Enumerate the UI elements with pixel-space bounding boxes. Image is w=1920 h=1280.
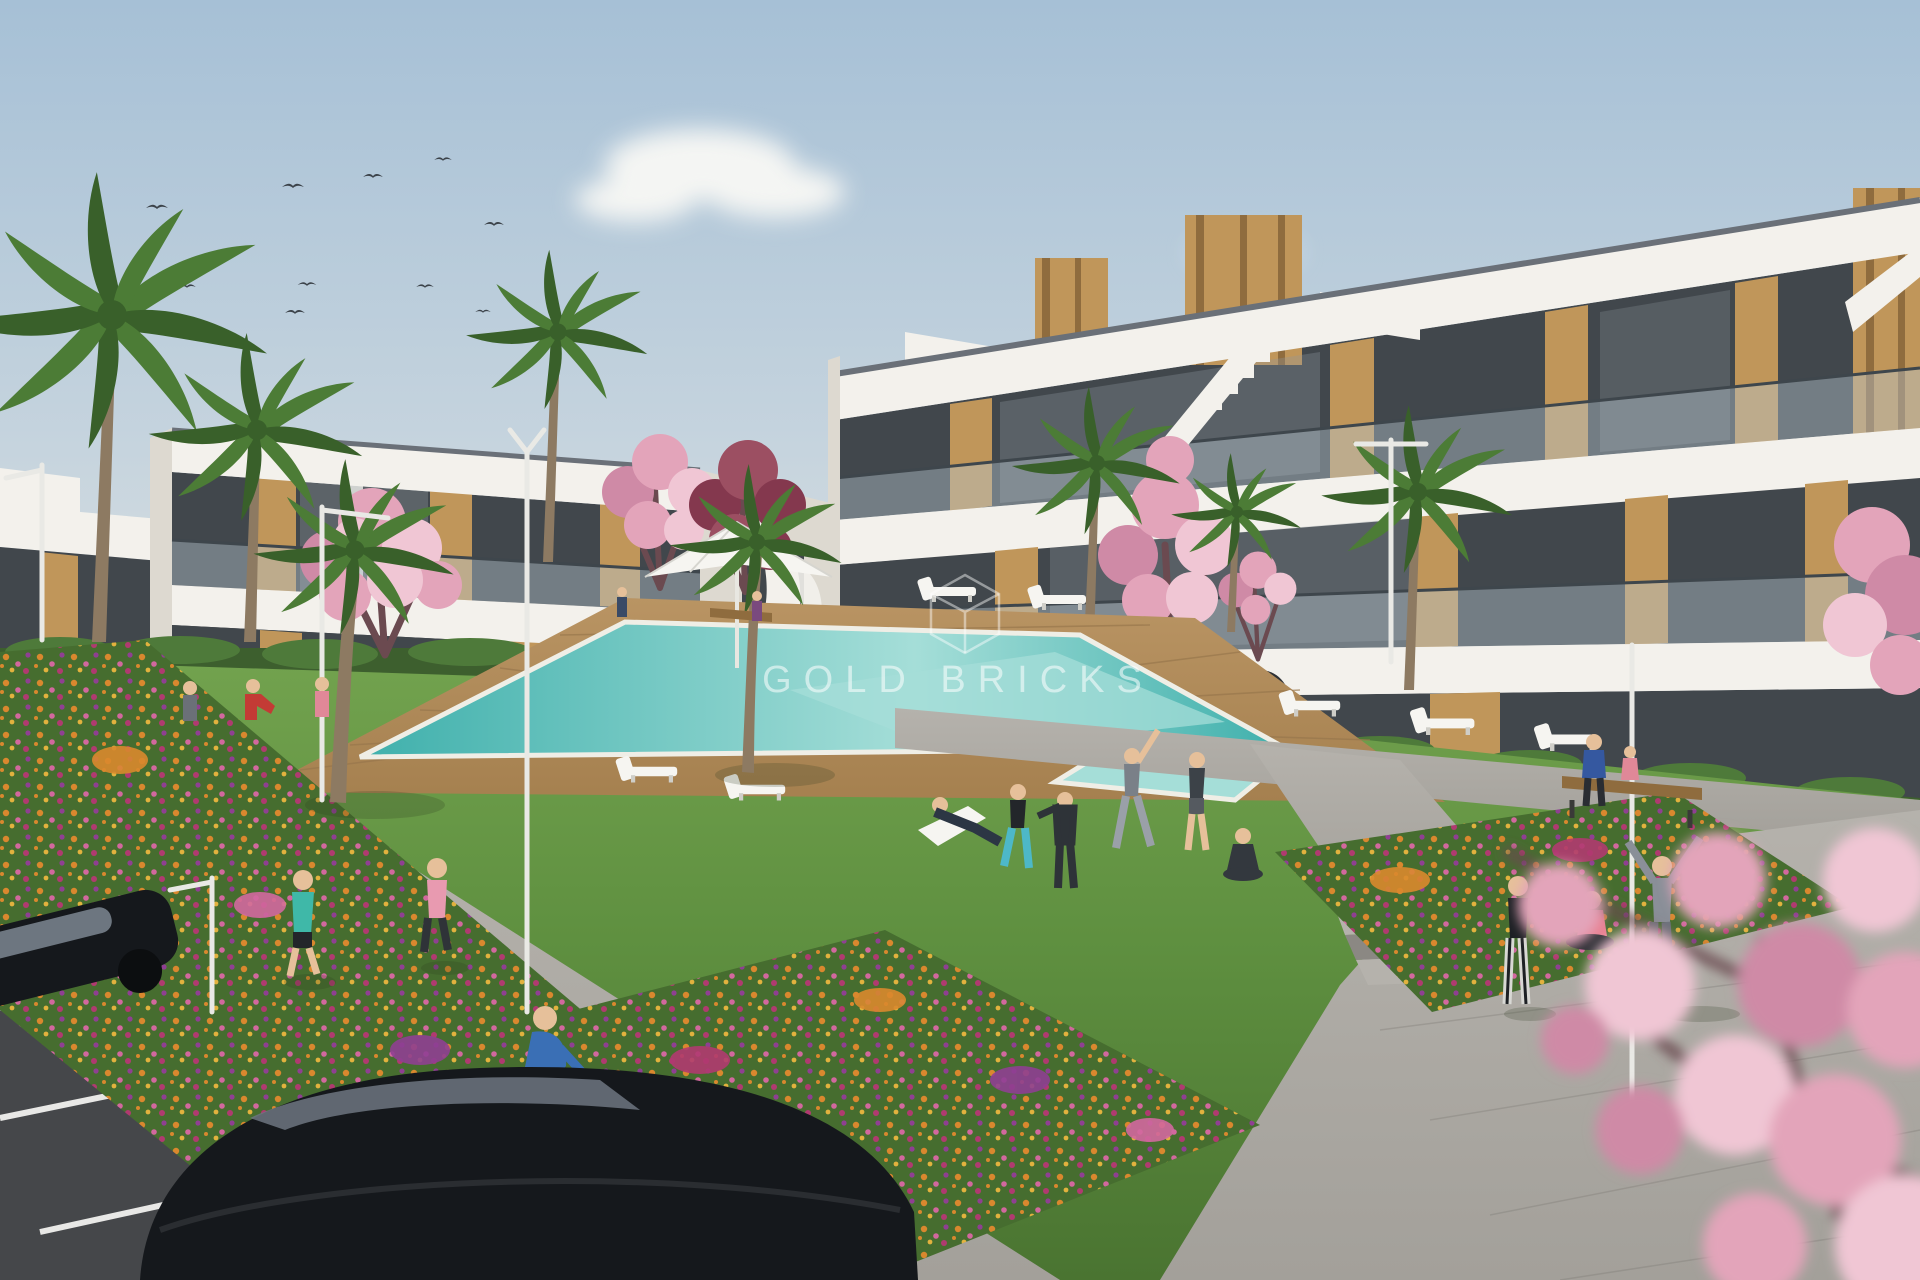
render-canvas: GOLD BRICKS	[0, 0, 1920, 1280]
watermark-text: GOLD BRICKS	[762, 659, 1154, 701]
real-estate-render: GOLD BRICKS	[0, 0, 1920, 1280]
